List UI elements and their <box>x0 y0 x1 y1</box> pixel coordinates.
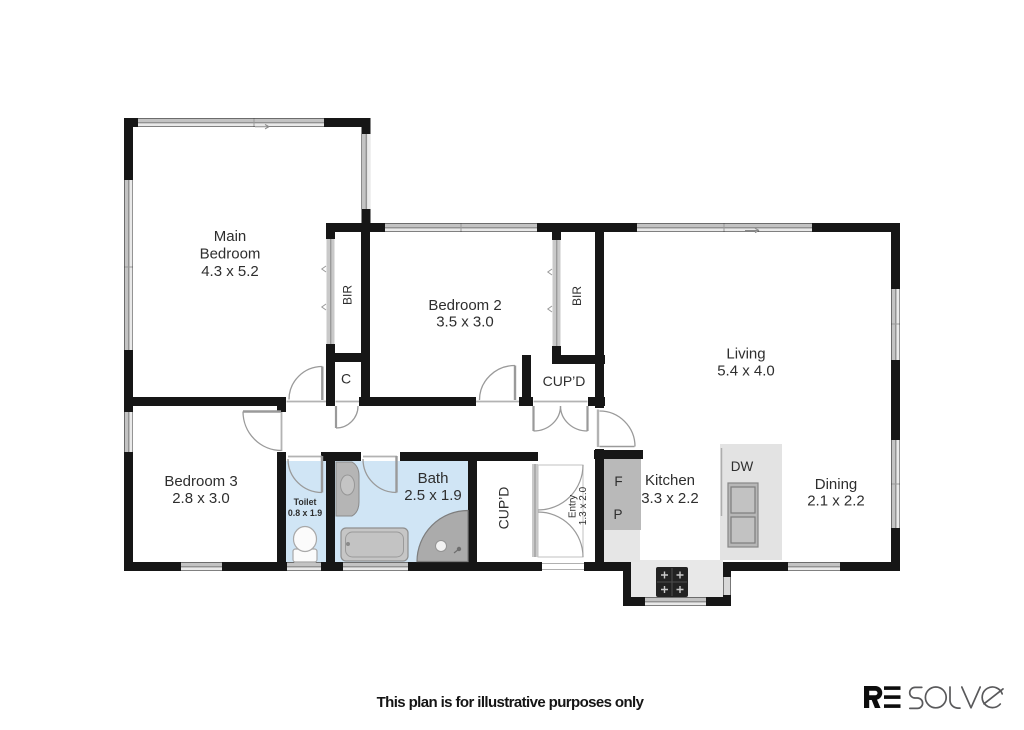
svg-text:C: C <box>341 371 351 387</box>
svg-text:Living: Living <box>726 346 765 363</box>
svg-text:Bedroom 2: Bedroom 2 <box>428 297 501 314</box>
svg-text:1.3 x 2.0: 1.3 x 2.0 <box>578 486 589 525</box>
svg-text:BIR: BIR <box>341 285 355 305</box>
svg-text:Entry: Entry <box>568 495 579 518</box>
svg-text:P: P <box>613 507 622 522</box>
svg-text:5.4 x 4.0: 5.4 x 4.0 <box>717 363 775 380</box>
svg-text:Bedroom: Bedroom <box>200 246 261 263</box>
svg-text:4.3 x 5.2: 4.3 x 5.2 <box>201 263 259 280</box>
svg-text:0.8 x 1.9: 0.8 x 1.9 <box>288 508 322 518</box>
svg-text:Toilet: Toilet <box>294 497 317 507</box>
svg-text:Kitchen: Kitchen <box>645 472 695 489</box>
svg-text:2.5 x 1.9: 2.5 x 1.9 <box>404 487 462 504</box>
svg-text:Main: Main <box>214 228 247 245</box>
svg-text:Bath: Bath <box>418 470 449 487</box>
svg-text:DW: DW <box>731 459 754 474</box>
svg-text:3.3 x 2.2: 3.3 x 2.2 <box>641 490 699 507</box>
svg-text:This plan is for illustrative: This plan is for illustrative purposes o… <box>377 694 645 711</box>
svg-text:Dining: Dining <box>815 476 858 493</box>
svg-text:2.1 x 2.2: 2.1 x 2.2 <box>807 493 865 510</box>
svg-text:2.8 x 3.0: 2.8 x 3.0 <box>172 490 230 507</box>
svg-text:BIR: BIR <box>570 286 584 306</box>
svg-text:F: F <box>614 474 622 489</box>
svg-text:Bedroom 3: Bedroom 3 <box>164 473 237 490</box>
svg-text:CUP’D: CUP’D <box>543 373 586 389</box>
svg-text:CUP’D: CUP’D <box>496 487 512 530</box>
svg-text:3.5 x 3.0: 3.5 x 3.0 <box>436 314 494 331</box>
